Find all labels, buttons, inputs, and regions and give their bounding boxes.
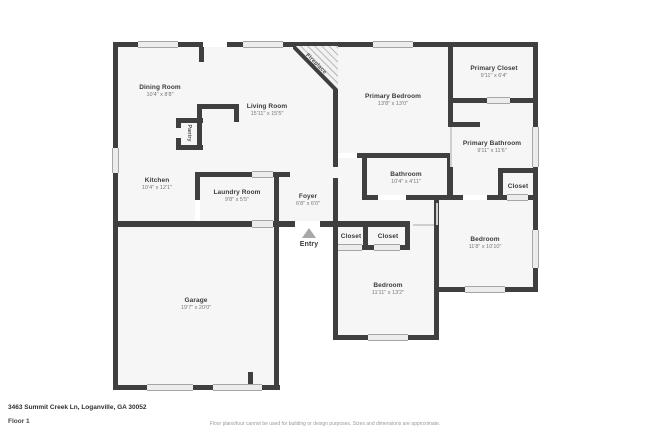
- room-label-closet-hall-1: Closet: [341, 233, 361, 241]
- door-opening: [436, 203, 438, 225]
- door-opening: [338, 153, 357, 158]
- wall: [197, 104, 239, 109]
- room-label-garage: Garage 19'7" x 20'0": [181, 297, 211, 312]
- wall: [113, 42, 118, 390]
- wall: [195, 172, 200, 200]
- closet-door: [338, 244, 362, 251]
- property-address: 3463 Summit Creek Ln, Loganville, GA 300…: [8, 404, 146, 411]
- door-opening: [252, 220, 273, 228]
- room-label-bathroom: Bathroom 10'4" x 4'11": [390, 171, 422, 186]
- closet-door: [374, 244, 400, 251]
- door-opening: [450, 127, 452, 167]
- fireplace: [293, 46, 338, 92]
- window: [465, 286, 505, 293]
- room-label-dining: Dining Room 10'4" x 8'8": [139, 84, 181, 99]
- room-label-primary-closet: Primary Closet 9'11" x 6'4": [470, 65, 517, 80]
- floor-label: Floor 1: [8, 418, 30, 425]
- door-opening: [413, 224, 434, 226]
- wall: [176, 138, 181, 150]
- wall: [333, 178, 338, 340]
- wall: [274, 172, 279, 390]
- wall: [498, 168, 538, 173]
- window: [532, 230, 539, 268]
- door-opening: [463, 195, 487, 200]
- disclaimer-text: Floor plans/tour cannot be used for buil…: [210, 421, 440, 427]
- room-label-primary-bathroom: Primary Bathroom 9'11" x 11'6": [463, 140, 521, 155]
- wall: [234, 104, 239, 122]
- window: [138, 41, 178, 48]
- wall: [197, 104, 202, 150]
- entry-arrow-icon: [302, 228, 316, 238]
- closet-door: [507, 194, 528, 201]
- room-label-pantry: Pantry: [186, 124, 192, 141]
- window: [368, 334, 408, 341]
- room-label-primary-bedroom: Primary Bedroom 13'8" x 13'0": [365, 93, 421, 108]
- garage-door: [147, 384, 193, 391]
- wall: [362, 158, 367, 195]
- door-opening: [378, 195, 406, 200]
- room-label-living: Living Room 15'11" x 15'5": [247, 103, 287, 118]
- room-label-laundry: Laundry Room 9'8" x 5'5": [213, 189, 260, 204]
- garage-door: [213, 384, 262, 391]
- wall: [450, 122, 480, 127]
- room-label-closet-hall-2: Closet: [378, 233, 398, 241]
- window: [373, 41, 413, 48]
- wall: [176, 118, 181, 128]
- wall: [498, 168, 503, 200]
- entry-label: Entry: [300, 241, 318, 249]
- room-label-closet-bedroom: Closet: [508, 183, 528, 191]
- room-label-bedroom-middle: Bedroom 11'11" x 13'2": [372, 282, 404, 297]
- room-label-kitchen: Kitchen 10'4" x 12'1": [142, 177, 172, 192]
- window: [532, 127, 539, 167]
- entry-door-opening: [295, 221, 320, 227]
- door-opening: [252, 171, 273, 178]
- window: [112, 148, 119, 173]
- window: [243, 41, 283, 48]
- room-label-bedroom-right: Bedroom 11'8" x 10'10": [469, 236, 502, 251]
- floor-fill-bedroom-right: [437, 222, 536, 290]
- door-opening: [203, 42, 227, 47]
- wall: [448, 42, 453, 127]
- door-opening: [195, 200, 200, 221]
- room-label-foyer: Foyer 6'8" x 6'0": [296, 193, 320, 208]
- closet-door: [487, 97, 510, 104]
- floor-plan-canvas: Fireplace Pantry Dining Room 10'4" x 8'8…: [0, 0, 650, 434]
